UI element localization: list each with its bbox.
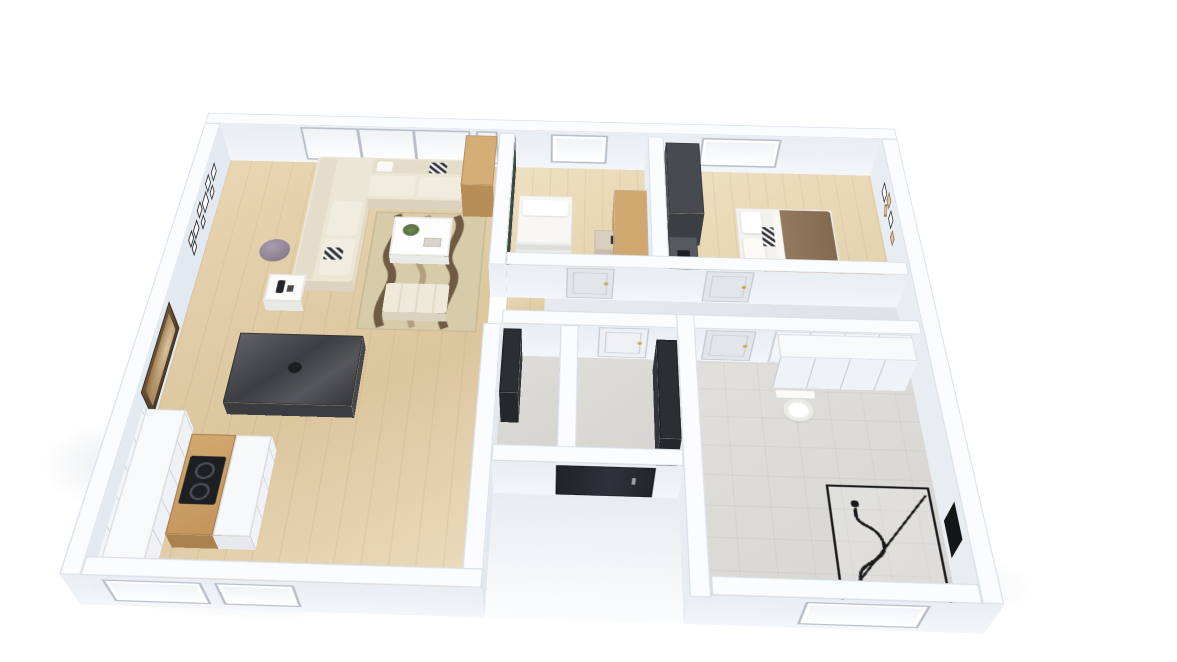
window-mullion <box>412 131 418 161</box>
island-side <box>165 534 219 549</box>
wardrobe2-top <box>666 143 705 214</box>
bedroom1-skylight <box>551 134 609 163</box>
window-mullion <box>356 130 364 160</box>
wall-end-cap <box>461 590 485 618</box>
front-door-handle <box>631 478 635 485</box>
picture-frame <box>201 214 206 230</box>
dark-cabinet-side <box>499 392 519 422</box>
picture-frame <box>890 230 895 247</box>
dining-table <box>227 345 366 418</box>
bed2-pillow <box>740 211 763 233</box>
side-table-top <box>263 274 307 302</box>
wall-end-cap <box>488 264 507 297</box>
sofa-cushion <box>366 175 417 197</box>
pantry-dark-cabinet <box>500 359 522 423</box>
table-centerpiece <box>287 362 303 373</box>
bath-cabinet-fronts <box>772 357 918 391</box>
bedroom1-door <box>566 268 615 299</box>
bathroom-cabinet-row <box>769 365 905 392</box>
entrance-alcove-ground <box>484 493 683 624</box>
picture-frame <box>211 162 217 182</box>
kitchen-exterior-window <box>214 583 302 607</box>
bathroom-skylight <box>797 602 931 628</box>
sofa-cushion <box>417 176 465 198</box>
dining-table-glass-top <box>223 333 364 407</box>
picture-frame <box>210 184 215 200</box>
bathroom-door <box>701 330 756 361</box>
side-table-side <box>263 301 304 312</box>
shower-wall-panel <box>944 502 963 559</box>
bedroom2-door <box>702 271 755 302</box>
zigzag-pillow <box>429 163 448 174</box>
coffee-table <box>390 225 454 265</box>
kitchen-exterior-window <box>101 579 211 604</box>
sofa-cushion <box>326 201 363 236</box>
wall-south-bathroom <box>703 606 963 633</box>
picture-frame <box>888 210 893 230</box>
picture-frame <box>202 191 209 214</box>
ottoman-bench <box>383 291 450 322</box>
potted-plant <box>402 224 420 236</box>
apartment-3d-floorplan <box>0 0 1177 662</box>
coffee-table-top <box>389 216 453 256</box>
wall-entry-south-outer-face <box>491 460 684 498</box>
floor-plan <box>74 150 988 654</box>
bed1-pillow <box>522 200 569 217</box>
cabinet-top <box>461 135 498 185</box>
ottoman-top <box>382 283 450 314</box>
zigzag-pillow <box>323 247 344 260</box>
bed2-brown-duvet <box>779 210 839 266</box>
island-white-side <box>213 536 256 551</box>
front-door <box>556 465 656 497</box>
decor-bottle <box>275 280 285 293</box>
table-book <box>423 238 442 247</box>
white-pillow <box>376 161 393 171</box>
wall-south-kitchen <box>100 586 485 617</box>
entry-hall-door <box>597 327 649 358</box>
wardrobe1-top <box>614 190 649 257</box>
cabinet-side <box>461 185 495 218</box>
decor-item <box>286 285 294 292</box>
bedroom2-skylight <box>698 138 782 168</box>
picture-frame <box>884 204 887 216</box>
